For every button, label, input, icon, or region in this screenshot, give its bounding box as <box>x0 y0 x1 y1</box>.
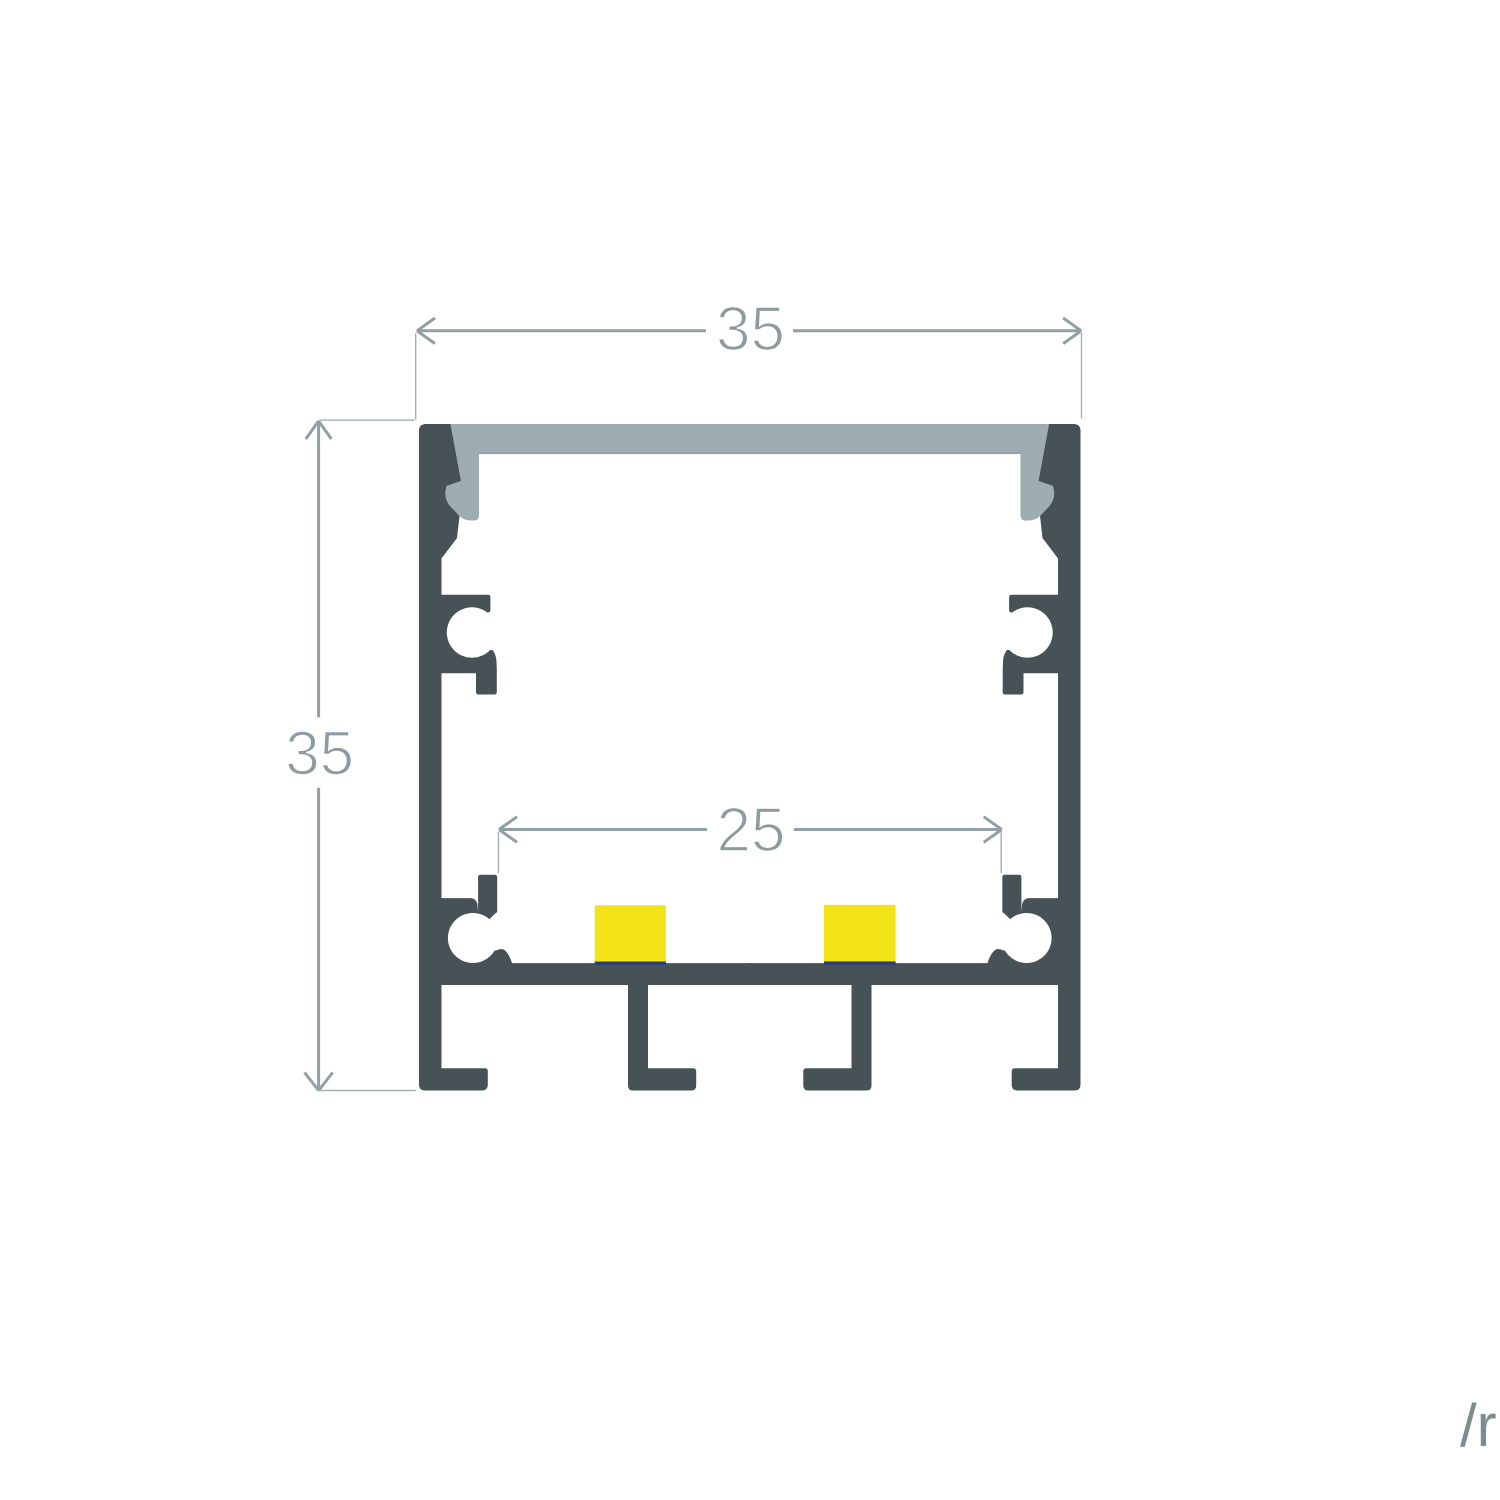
svg-text:35: 35 <box>716 295 785 364</box>
svg-text:35: 35 <box>285 720 354 789</box>
svg-text:25: 25 <box>717 796 786 865</box>
svg-text:/r: /r <box>1460 1392 1497 1459</box>
